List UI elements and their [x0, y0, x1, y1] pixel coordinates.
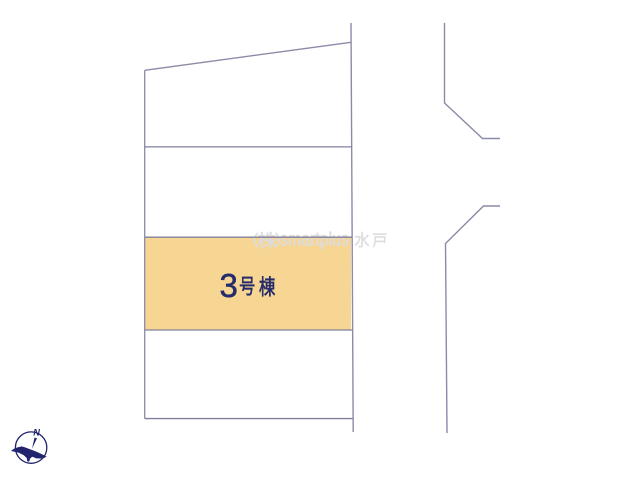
svg-text:smartplus: smartplus: [280, 229, 349, 251]
svg-text:3: 3: [220, 267, 238, 304]
svg-text:(: (: [253, 231, 258, 248]
svg-text:N: N: [33, 428, 40, 438]
